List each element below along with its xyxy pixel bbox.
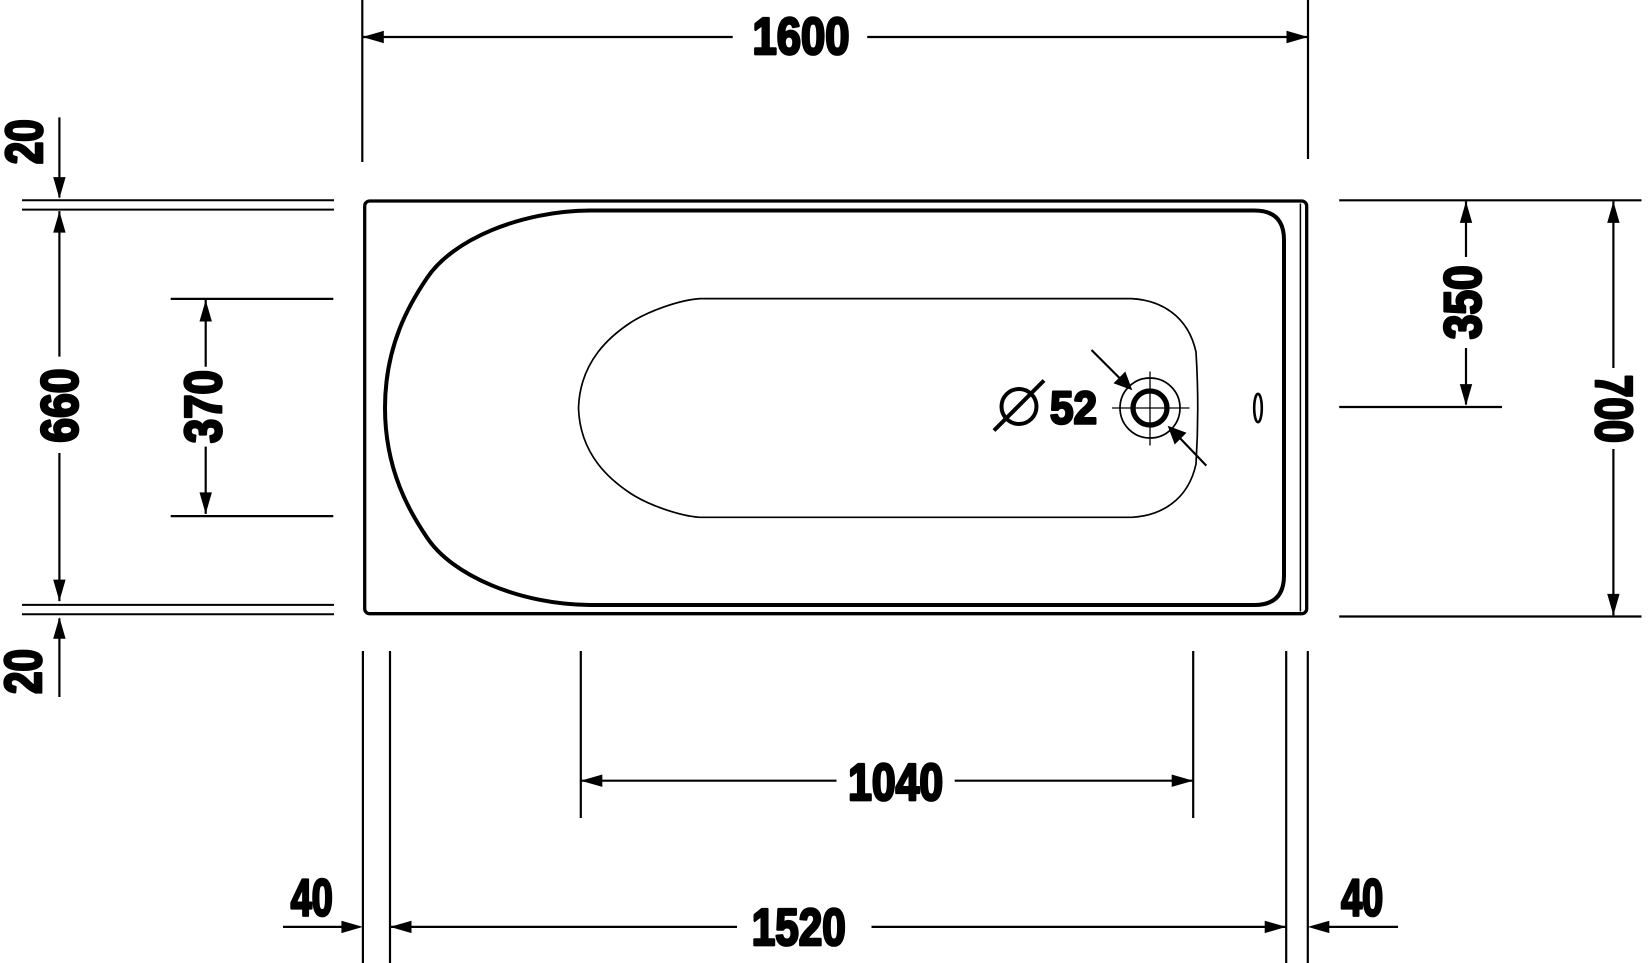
svg-text:1600: 1600 xyxy=(753,8,850,66)
svg-text:350: 350 xyxy=(1435,265,1493,339)
svg-text:20: 20 xyxy=(0,119,54,164)
svg-text:1040: 1040 xyxy=(848,754,943,812)
svg-text:700: 700 xyxy=(1584,375,1642,443)
svg-text:40: 40 xyxy=(291,869,333,927)
svg-text:1520: 1520 xyxy=(752,899,846,957)
svg-text:52: 52 xyxy=(1050,382,1097,434)
svg-text:40: 40 xyxy=(1341,869,1383,927)
svg-text:370: 370 xyxy=(175,370,233,443)
svg-text:660: 660 xyxy=(31,369,89,443)
svg-text:20: 20 xyxy=(0,649,53,694)
